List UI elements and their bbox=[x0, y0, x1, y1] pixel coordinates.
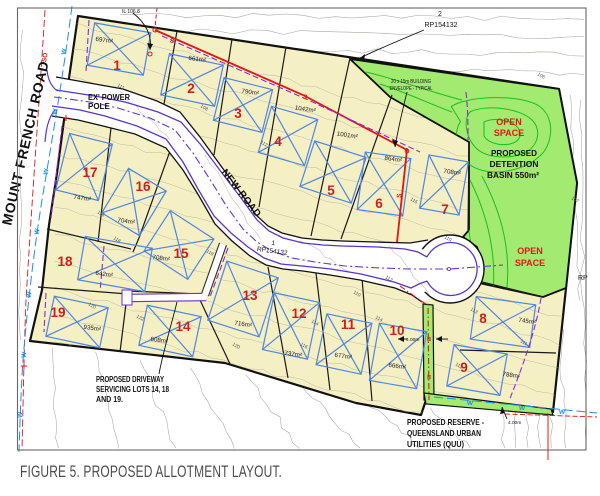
svg-text:POLE: POLE bbox=[88, 102, 110, 111]
svg-text:20 x 15m BUILDING: 20 x 15m BUILDING bbox=[391, 79, 431, 85]
svg-text:QUEENSLAND URBAN: QUEENSLAND URBAN bbox=[407, 428, 481, 438]
svg-text:2: 2 bbox=[187, 81, 195, 96]
svg-text:AND 19.: AND 19. bbox=[96, 395, 123, 404]
svg-text:12: 12 bbox=[291, 306, 306, 321]
svg-text:SPACE: SPACE bbox=[515, 258, 545, 268]
svg-text:7: 7 bbox=[441, 202, 449, 217]
svg-text:15: 15 bbox=[173, 246, 189, 261]
svg-text:BASIN 550m²: BASIN 550m² bbox=[487, 170, 539, 180]
svg-text:2: 2 bbox=[438, 11, 442, 18]
svg-text:SPACE: SPACE bbox=[494, 128, 524, 138]
svg-text:4.00m: 4.00m bbox=[406, 337, 419, 343]
svg-text:SERVICING LOTS 14, 18: SERVICING LOTS 14, 18 bbox=[96, 385, 169, 394]
svg-text:14: 14 bbox=[175, 319, 191, 334]
svg-text:17: 17 bbox=[82, 165, 97, 180]
svg-text:1: 1 bbox=[113, 58, 121, 73]
svg-text:ENVELOPE - TYPICAL: ENVELOPE - TYPICAL bbox=[390, 86, 433, 92]
svg-text:UTILITIES (QUU): UTILITIES (QUU) bbox=[407, 439, 464, 449]
svg-text:IL 106.8: IL 106.8 bbox=[122, 9, 140, 15]
svg-text:DETENTION: DETENTION bbox=[490, 159, 539, 169]
svg-text:4: 4 bbox=[274, 134, 282, 149]
svg-text:OPEN: OPEN bbox=[517, 246, 543, 256]
svg-text:RP154132: RP154132 bbox=[424, 22, 457, 29]
svg-text:PROPOSED RESERVE -: PROPOSED RESERVE - bbox=[407, 417, 484, 427]
svg-text:3: 3 bbox=[234, 106, 242, 121]
svg-text:FIGURE 5. PROPOSED ALLOTMENT L: FIGURE 5. PROPOSED ALLOTMENT LAYOUT. bbox=[20, 463, 282, 481]
svg-text:PROPOSED DRIVEWAY: PROPOSED DRIVEWAY bbox=[96, 375, 164, 384]
svg-text:19: 19 bbox=[50, 305, 65, 320]
svg-text:13: 13 bbox=[242, 288, 258, 303]
svg-text:10: 10 bbox=[389, 323, 404, 338]
svg-text:5: 5 bbox=[327, 183, 335, 198]
svg-text:6: 6 bbox=[375, 196, 383, 211]
svg-text:8: 8 bbox=[479, 311, 487, 326]
svg-text:W: W bbox=[427, 374, 433, 379]
svg-text:W: W bbox=[427, 336, 433, 341]
svg-text:9: 9 bbox=[460, 360, 468, 375]
svg-text:EX' POWER: EX' POWER bbox=[88, 93, 130, 102]
svg-text:18: 18 bbox=[57, 254, 73, 269]
svg-text:4.00m: 4.00m bbox=[508, 420, 521, 426]
svg-text:OPEN: OPEN bbox=[496, 117, 522, 127]
svg-text:16: 16 bbox=[135, 179, 151, 194]
svg-text:11: 11 bbox=[341, 317, 356, 332]
svg-text:PROPOSED: PROPOSED bbox=[491, 148, 537, 158]
